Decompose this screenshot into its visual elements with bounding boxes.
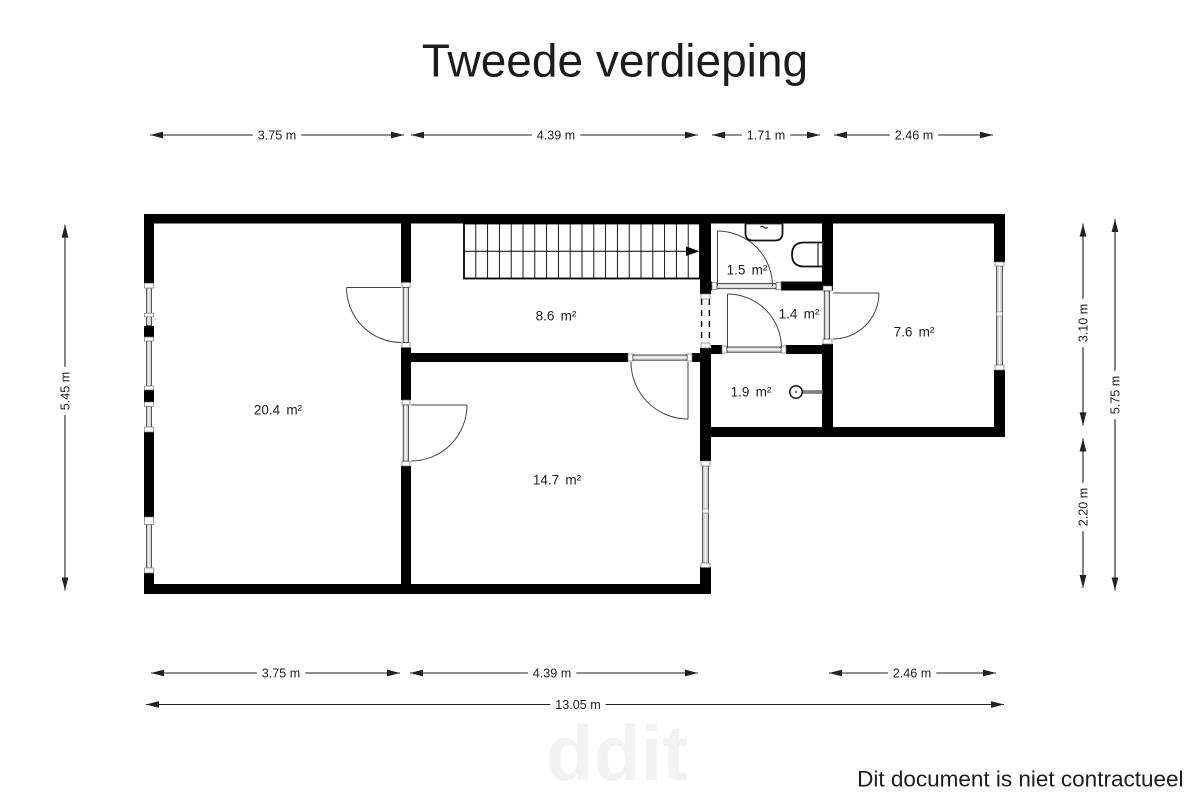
svg-text:3.10 m: 3.10 m: [1076, 304, 1090, 343]
svg-text:3.75 m: 3.75 m: [262, 666, 301, 680]
svg-text:7.6 m²: 7.6 m²: [894, 325, 935, 340]
svg-text:20.4 m²: 20.4 m²: [254, 403, 303, 418]
svg-text:1.4 m²: 1.4 m²: [779, 307, 820, 322]
svg-text:1.71 m: 1.71 m: [747, 128, 786, 142]
svg-text:13.05 m: 13.05 m: [555, 698, 601, 712]
svg-text:2.20 m: 2.20 m: [1076, 488, 1090, 527]
svg-text:2.46 m: 2.46 m: [893, 666, 932, 680]
svg-text:14.7 m²: 14.7 m²: [533, 473, 582, 488]
svg-text:3.75 m: 3.75 m: [258, 128, 297, 142]
svg-text:5.45 m: 5.45 m: [58, 372, 72, 411]
svg-text:ddit: ddit: [546, 711, 688, 797]
svg-text:1.9 m²: 1.9 m²: [731, 385, 772, 400]
svg-text:1.5 m²: 1.5 m²: [727, 263, 768, 278]
svg-text:Dit document is niet contractu: Dit document is niet contractueel: [857, 767, 1183, 792]
svg-text:2.46 m: 2.46 m: [895, 128, 934, 142]
svg-text:5.75 m: 5.75 m: [1108, 376, 1122, 415]
svg-text:8.6 m²: 8.6 m²: [536, 309, 577, 324]
svg-text:Tweede verdieping: Tweede verdieping: [422, 35, 808, 87]
svg-text:4.39 m: 4.39 m: [533, 666, 572, 680]
svg-text:4.39 m: 4.39 m: [537, 128, 576, 142]
